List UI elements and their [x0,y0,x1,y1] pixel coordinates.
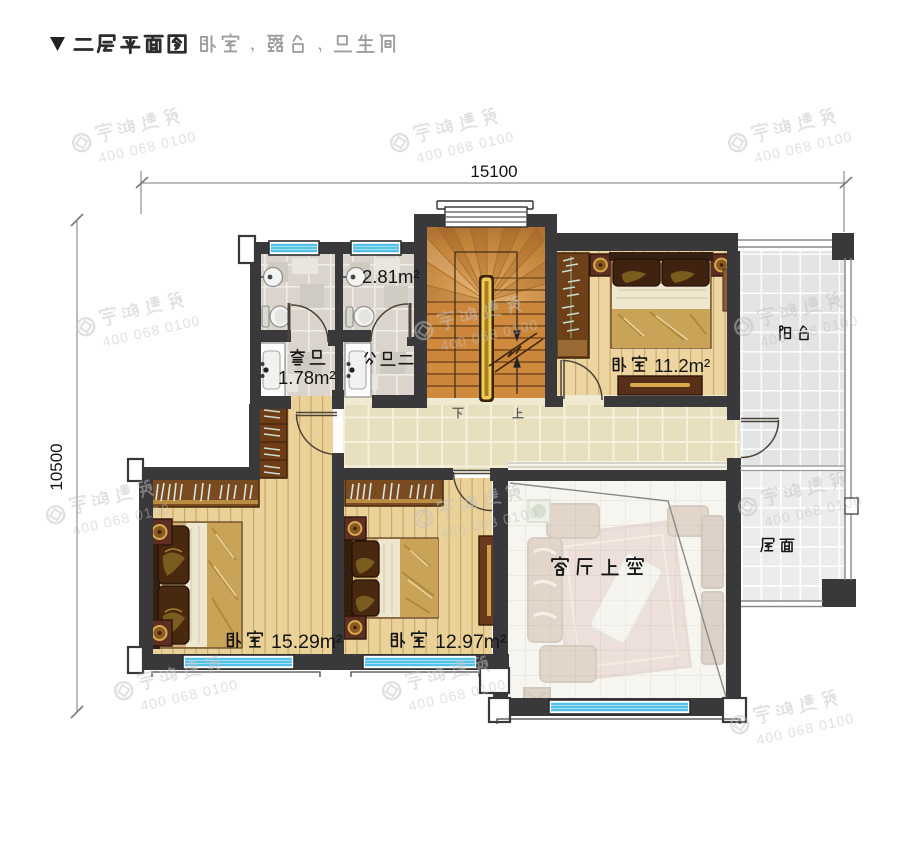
svg-text:12.97m²: 12.97m² [435,631,507,653]
svg-text:11.2m²: 11.2m² [654,355,710,376]
svg-text:15.29m²: 15.29m² [271,631,343,653]
svg-text:1.78m²: 1.78m² [278,367,336,388]
svg-text:2.81m²: 2.81m² [362,266,420,287]
svg-text:15100: 15100 [470,162,517,181]
svg-text:10500: 10500 [47,443,66,490]
